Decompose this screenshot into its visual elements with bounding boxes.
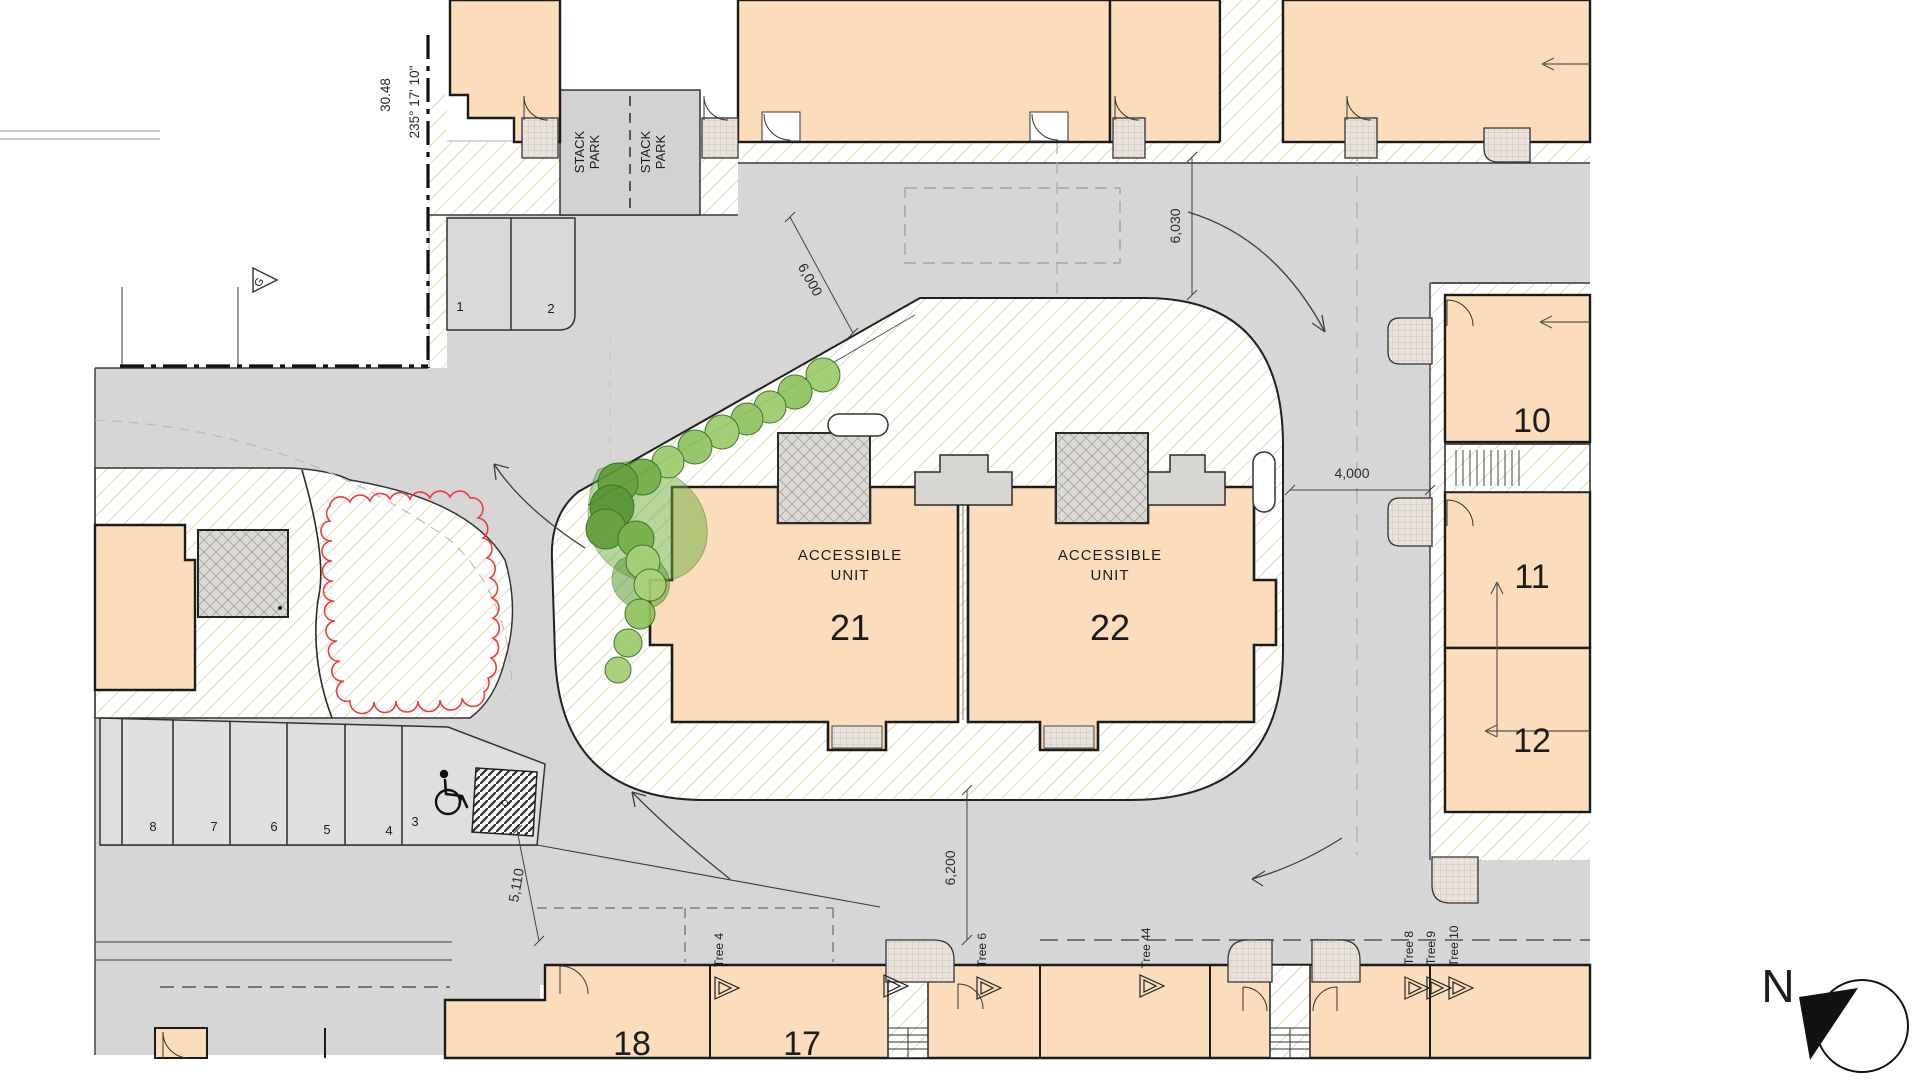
unit-12-number: 12	[1513, 722, 1551, 760]
deck-unit-22	[1056, 433, 1148, 523]
parking-space-3: 3	[411, 814, 418, 829]
unit-22-accessible-1: ACCESSIBLE	[1058, 547, 1162, 564]
planter-oval-top	[828, 414, 888, 436]
dim-4000: 4,000	[1334, 465, 1369, 481]
unit-18-number: 18	[613, 1025, 651, 1063]
survey-marker: G	[252, 268, 277, 292]
planter-oval-right	[1253, 452, 1275, 512]
store-left	[198, 530, 288, 617]
unit-21-accessible-1: ACCESSIBLE	[798, 547, 902, 564]
unit-17-number: 17	[783, 1025, 821, 1063]
dim-boundary-length: 30.48	[378, 78, 393, 112]
site-plan-page: 1 2 8 7 6 5 4 3 STACK PARK STACK PARK	[0, 0, 1920, 1080]
unit-22-accessible-2: UNIT	[1091, 567, 1130, 584]
alley	[1220, 0, 1283, 155]
survey-marker-label: G	[252, 276, 267, 289]
stairwell-right	[1445, 444, 1590, 492]
parking-space-8: 8	[149, 819, 156, 834]
building-left	[95, 525, 195, 690]
tree-44-label: Tree 44	[1139, 927, 1153, 968]
parking-space-1: 1	[456, 299, 463, 314]
dim-boundary-bearing: 235° 17' 10"	[407, 65, 422, 138]
unit-21-accessible-2: UNIT	[831, 567, 870, 584]
porch-mat-21	[832, 726, 882, 748]
parking-space-4: 4	[385, 823, 392, 838]
stack-park-label-1b: PARK	[587, 134, 602, 169]
dim-6200: 6,200	[942, 850, 958, 885]
stack-park-label-2a: STACK	[638, 130, 653, 173]
parking-space-7: 7	[210, 819, 217, 834]
tree-6-label: Tree 6	[975, 933, 989, 968]
unit-22-number: 22	[1090, 607, 1130, 648]
tree-9-label: Tree 9	[1424, 931, 1438, 966]
porch-mat-22	[1044, 726, 1094, 748]
dim-6030: 6,030	[1167, 208, 1183, 243]
north-label: N	[1761, 960, 1794, 1012]
building-top-4	[1283, 0, 1590, 142]
parking-space-6: 6	[270, 819, 277, 834]
tree-10-label: Tree 10	[1447, 925, 1461, 966]
tree-4-label: Tree 4	[712, 933, 726, 968]
north-arrow: N	[1761, 960, 1908, 1072]
parking-space-5: 5	[323, 822, 330, 837]
stack-park-label-1a: STACK	[572, 130, 587, 173]
unit-21-number: 21	[830, 607, 870, 648]
unit-11-number: 11	[1514, 558, 1549, 596]
unit-10-number: 10	[1513, 402, 1551, 440]
stack-park-label-2b: PARK	[653, 134, 668, 169]
tree-8-label: Tree 8	[1402, 931, 1416, 966]
parking-space-2: 2	[547, 301, 554, 316]
deck-unit-21	[778, 433, 870, 523]
site-plan-svg: 1 2 8 7 6 5 4 3 STACK PARK STACK PARK	[0, 0, 1920, 1080]
